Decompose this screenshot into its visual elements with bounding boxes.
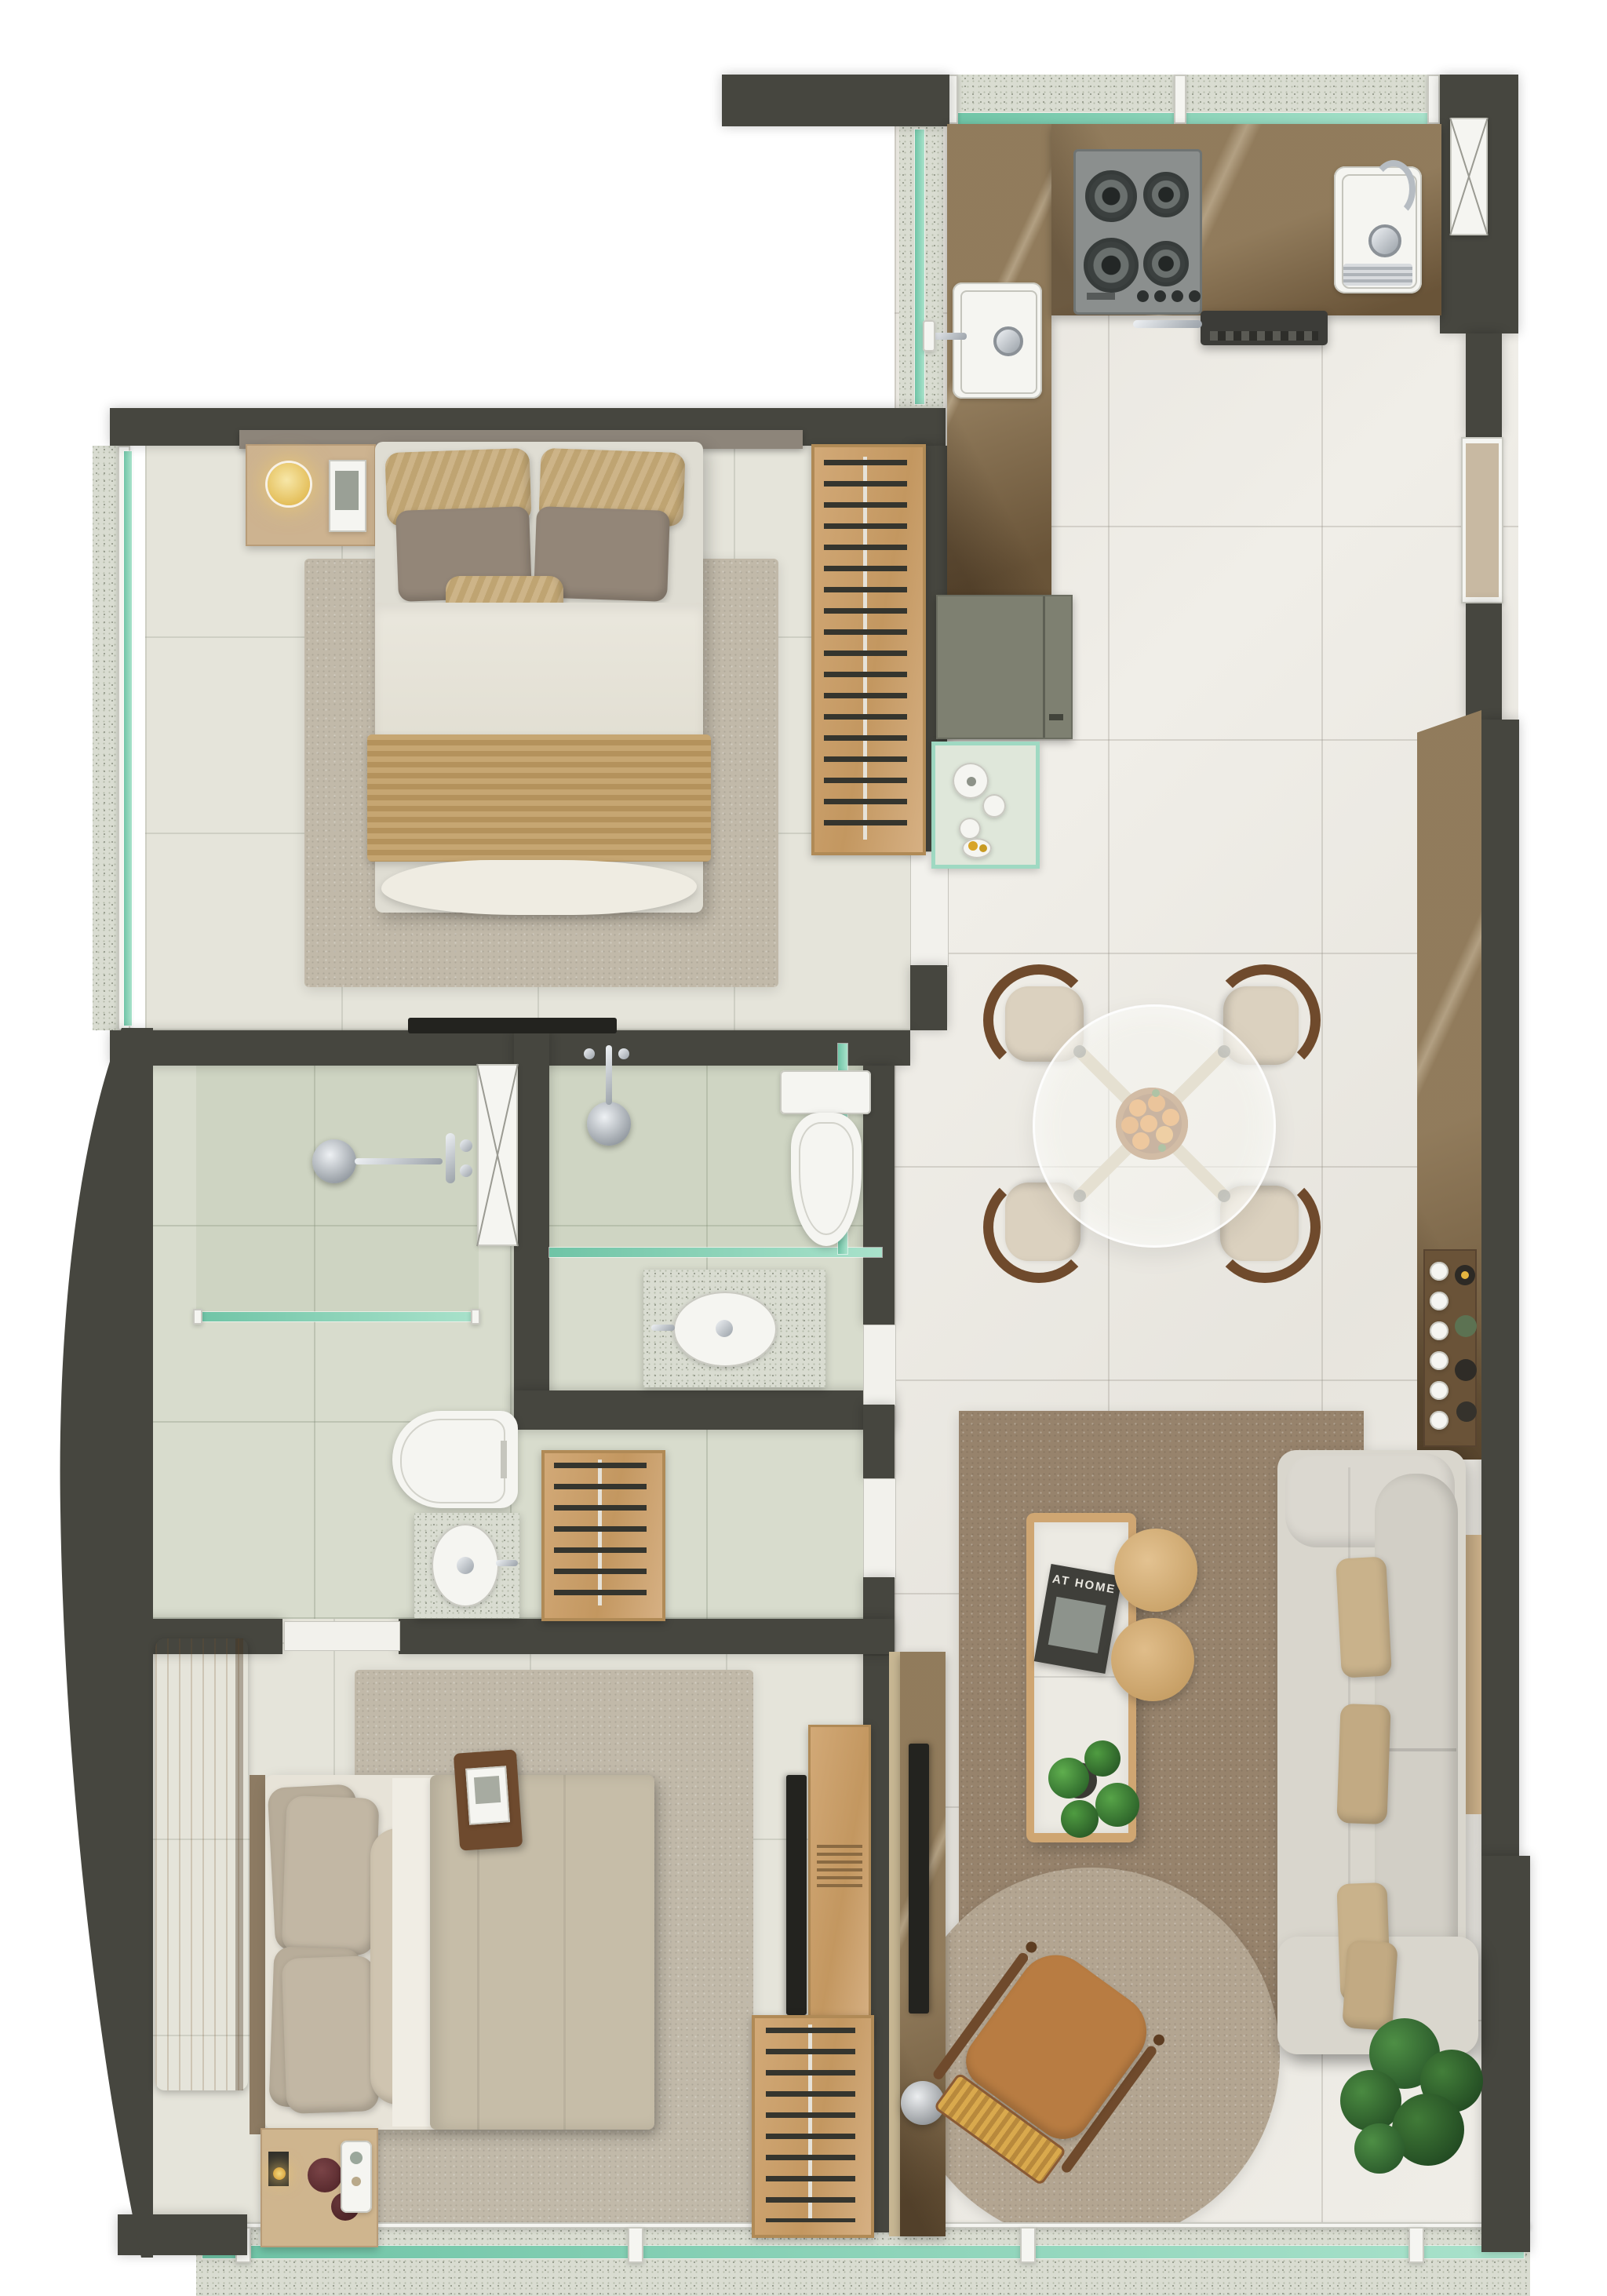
shower-arm bbox=[606, 1045, 612, 1105]
burner-icon bbox=[1084, 238, 1139, 293]
burner-icon bbox=[1143, 241, 1189, 286]
bathroom-top-wall bbox=[110, 1030, 910, 1066]
wardrobe-hangers bbox=[824, 460, 907, 838]
shower-knob bbox=[460, 1164, 472, 1177]
bedroom-bottom-door bbox=[863, 1478, 896, 1579]
bathroom-divider-wall bbox=[514, 1030, 549, 1419]
monstera-plant bbox=[1044, 1734, 1146, 1852]
faucet-icon bbox=[1372, 160, 1416, 218]
bedroom-top-window-glass bbox=[124, 451, 132, 1026]
coaster bbox=[1430, 1262, 1448, 1281]
bolster-seam bbox=[1378, 1748, 1456, 1751]
recess-floor bbox=[1466, 443, 1499, 597]
candle-flame-icon bbox=[273, 2167, 286, 2180]
sink-drain bbox=[716, 1320, 733, 1337]
bench-edge-shadow bbox=[235, 1638, 243, 2090]
rain-shower-head bbox=[587, 1102, 631, 1146]
console-shelf-lines bbox=[817, 1845, 862, 1892]
wardrobe-bottom-bedroom bbox=[752, 2015, 874, 2238]
potted-plant bbox=[1326, 2018, 1491, 2183]
coaster bbox=[1430, 1292, 1448, 1310]
tea-cup bbox=[982, 794, 1006, 818]
gas-cooktop bbox=[1073, 149, 1202, 315]
kitchen-main-sink bbox=[1334, 166, 1422, 293]
shower-glass-main bbox=[198, 1312, 477, 1321]
hall-wall-b bbox=[863, 1405, 895, 1478]
glass-end-cap bbox=[471, 1309, 480, 1325]
wardrobe-hangers bbox=[554, 1463, 647, 1607]
cooktop-knob bbox=[1189, 290, 1201, 302]
bedroom-top-window-sill bbox=[93, 446, 119, 1030]
shower-door-panel bbox=[477, 1064, 518, 1246]
bathroom-main-door-leaf bbox=[284, 1621, 400, 1651]
bed-foot-throw bbox=[381, 860, 697, 915]
leaf-icon bbox=[1095, 1783, 1139, 1827]
window-post bbox=[1020, 2227, 1036, 2263]
window-post bbox=[1174, 75, 1186, 124]
kitchen-rail bbox=[1133, 320, 1202, 328]
flowers bbox=[308, 2158, 342, 2192]
sink-drain bbox=[1368, 224, 1401, 257]
window-post bbox=[1408, 2227, 1424, 2263]
book-photo bbox=[1048, 1597, 1106, 1653]
dark-jar bbox=[1456, 1401, 1477, 1422]
media-side-strip bbox=[889, 1652, 900, 2236]
tea-table bbox=[931, 742, 1040, 869]
book-cover-photo bbox=[335, 471, 359, 510]
right-wall-main bbox=[1481, 720, 1519, 1856]
kitchen-side-window-glass bbox=[915, 129, 924, 404]
cooktop-knob bbox=[1137, 290, 1149, 302]
window-post bbox=[628, 2227, 643, 2263]
coaster bbox=[1430, 1321, 1448, 1340]
sink-drain bbox=[457, 1557, 474, 1574]
nightstand-book bbox=[329, 460, 366, 532]
nightstand bbox=[246, 444, 376, 546]
tea-bowl bbox=[959, 818, 981, 840]
sink-drain bbox=[993, 326, 1023, 356]
wardrobe-hangers bbox=[766, 2028, 855, 2222]
drying-ribs bbox=[1343, 264, 1412, 286]
candle-flame-icon bbox=[1461, 1271, 1469, 1279]
vanity-second bbox=[643, 1270, 825, 1387]
glass-tabletop bbox=[1033, 1004, 1276, 1248]
teapot-knob bbox=[967, 777, 976, 786]
shower-knob bbox=[460, 1139, 472, 1152]
toilet-seat-line bbox=[400, 1419, 505, 1503]
dark-jar bbox=[1455, 1359, 1477, 1381]
bathroom-second-bottom-wall bbox=[514, 1390, 895, 1430]
coaster bbox=[1430, 1381, 1448, 1400]
cabinet-handle bbox=[1049, 714, 1063, 720]
nightstand-tray bbox=[341, 2141, 372, 2213]
bedroom-bottom-tv bbox=[786, 1775, 807, 2015]
bedroom-bottom-top-wall-right bbox=[399, 1619, 895, 1654]
burner-icon bbox=[1143, 172, 1189, 217]
bedroom-top-door-threshold bbox=[910, 851, 949, 967]
duvet-fold-line bbox=[563, 1775, 566, 2130]
bedroom-top-right-wall-low bbox=[910, 965, 947, 1030]
right-wall-upper bbox=[1466, 333, 1502, 437]
bed-duvet bbox=[375, 603, 703, 738]
living-tv bbox=[909, 1744, 929, 2014]
nightstand-bottom bbox=[261, 2128, 378, 2247]
bed-blanket-striped bbox=[367, 734, 711, 862]
refrigerator-niche bbox=[1450, 118, 1488, 235]
tv-console-bottom bbox=[808, 1725, 871, 2037]
bed-pillow bbox=[282, 1795, 380, 1955]
cooktop-knob bbox=[1172, 290, 1183, 302]
toilet-flush-slot bbox=[501, 1441, 507, 1478]
toilet-second-tank bbox=[780, 1070, 871, 1114]
shower-control-bar bbox=[446, 1133, 455, 1183]
kitchen-top-window-glass bbox=[946, 113, 1440, 124]
olive-cabinet bbox=[936, 595, 1073, 739]
serving-tray bbox=[1423, 1249, 1477, 1447]
shower-arm bbox=[355, 1158, 443, 1164]
vanity-faucet bbox=[496, 1560, 518, 1566]
magazine-photo bbox=[474, 1776, 501, 1804]
kitchen-prep-sink bbox=[953, 282, 1042, 399]
burner-icon bbox=[1085, 170, 1137, 222]
right-wall-mid bbox=[1466, 603, 1502, 720]
bedroom-top-tv bbox=[408, 1018, 617, 1033]
breakfast-tray bbox=[454, 1749, 523, 1850]
coaster bbox=[1430, 1411, 1448, 1430]
sofa-pillow bbox=[1336, 1704, 1390, 1824]
toilet-seat-line bbox=[799, 1122, 854, 1235]
glass-end-cap bbox=[193, 1309, 202, 1325]
leaf-icon bbox=[1048, 1758, 1089, 1799]
shower-knob bbox=[618, 1048, 629, 1059]
nesting-side-table bbox=[1114, 1529, 1197, 1612]
cabinet-door-line bbox=[1043, 596, 1045, 738]
entry-door-recess bbox=[1461, 437, 1503, 603]
floor-plan: AT HOME bbox=[0, 0, 1607, 2296]
bottle bbox=[350, 2152, 363, 2164]
window-post bbox=[1427, 75, 1440, 124]
range-hood bbox=[1201, 311, 1328, 345]
cooktop-brand-strip bbox=[1087, 293, 1115, 300]
hood-vents bbox=[1210, 331, 1318, 341]
vanity-main bbox=[414, 1513, 519, 1618]
toilet-main bbox=[392, 1411, 518, 1508]
bed-pillow bbox=[282, 1955, 380, 2114]
vanity-faucet bbox=[651, 1325, 675, 1331]
sofa-pillow bbox=[1342, 1940, 1398, 2031]
shower-glass-second-bottom bbox=[549, 1248, 882, 1257]
green-jar bbox=[1455, 1315, 1477, 1337]
curved-wall-bench bbox=[155, 1638, 248, 2090]
lemon bbox=[979, 844, 987, 852]
coaster bbox=[1430, 1351, 1448, 1370]
sphere-lamp bbox=[268, 463, 310, 505]
lemon bbox=[968, 841, 978, 851]
kitchen-top-wall bbox=[722, 75, 949, 126]
corridor-wardrobe bbox=[541, 1450, 665, 1621]
balcony-window-glass bbox=[202, 2246, 1524, 2258]
headboard-bottom bbox=[250, 1775, 265, 2134]
shower-knob bbox=[584, 1048, 595, 1059]
rain-shower-head bbox=[312, 1139, 356, 1183]
wardrobe-top-bedroom bbox=[811, 444, 926, 855]
prep-faucet-handle bbox=[923, 320, 935, 352]
sofa-pillow bbox=[1336, 1556, 1392, 1678]
cooktop-knob bbox=[1154, 290, 1166, 302]
leaf-icon bbox=[1354, 2123, 1405, 2174]
bottle bbox=[352, 2177, 361, 2186]
nesting-side-table bbox=[1111, 1618, 1194, 1701]
tray-magazine bbox=[465, 1766, 510, 1824]
leaf-icon bbox=[1084, 1740, 1121, 1777]
bathroom-second-door bbox=[863, 1325, 896, 1406]
leaf-icon bbox=[1061, 1800, 1099, 1838]
